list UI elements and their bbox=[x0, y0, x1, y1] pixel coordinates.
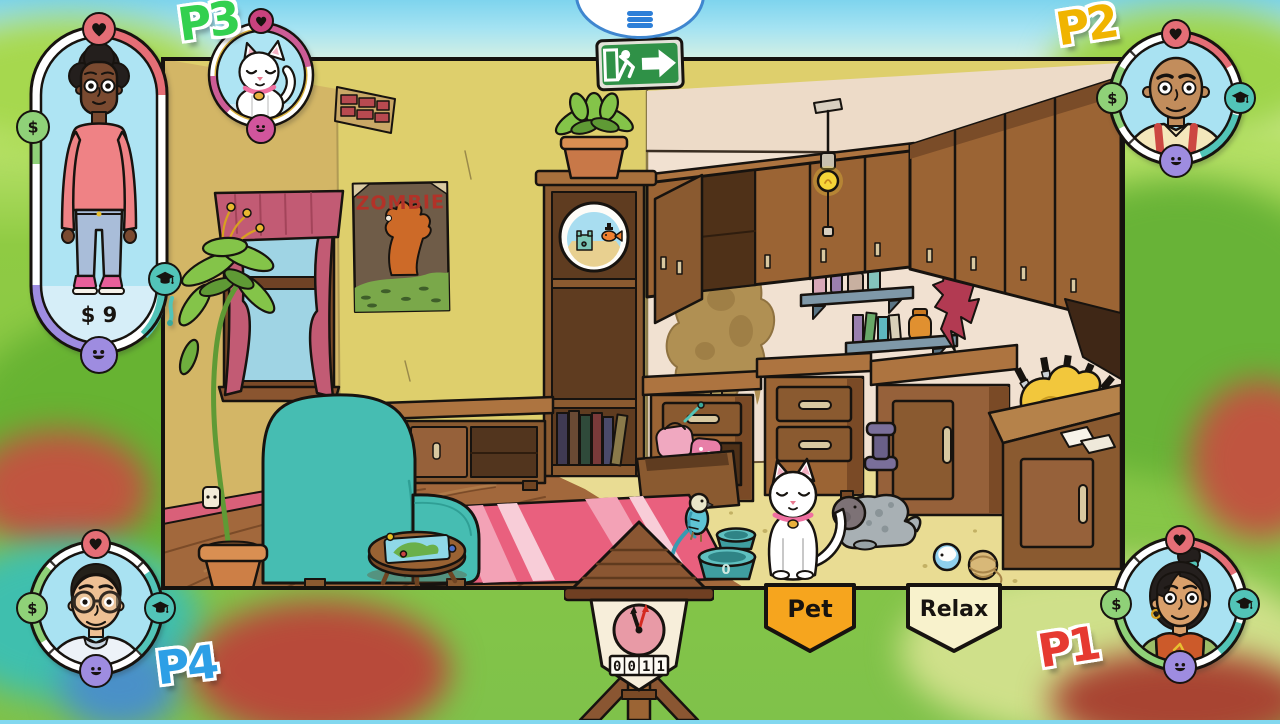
education-icon bbox=[1224, 82, 1256, 114]
wall-socket bbox=[203, 487, 220, 508]
fishbowl bbox=[560, 203, 628, 271]
cuckoo-clock: 0 0 1 1 bbox=[564, 518, 714, 720]
money-icon: $ bbox=[1096, 82, 1128, 114]
player-p1-portrait: $ bbox=[1110, 534, 1250, 674]
svg-text:$: $ bbox=[27, 600, 37, 617]
player-p4-portrait: $ bbox=[26, 538, 166, 678]
zombie-poster: ZOMBIE bbox=[353, 182, 449, 312]
mood-icon bbox=[79, 654, 113, 688]
coffee-table-with-board-game bbox=[367, 529, 467, 586]
player-p4-label: P4 bbox=[153, 639, 218, 692]
heart-icon bbox=[1161, 19, 1191, 49]
books bbox=[557, 411, 627, 465]
heart-icon bbox=[248, 8, 274, 34]
exit-sign[interactable] bbox=[595, 36, 685, 91]
player-p2-portrait: $ bbox=[1106, 28, 1246, 168]
education-icon bbox=[144, 592, 176, 624]
window-with-curtains bbox=[215, 191, 343, 401]
counter-digit: 1 bbox=[656, 659, 664, 675]
money-icon: $ bbox=[1100, 588, 1132, 620]
education-icon bbox=[148, 262, 182, 296]
svg-text:$: $ bbox=[28, 118, 39, 137]
player-p2-label: P2 bbox=[1053, 0, 1119, 52]
counter-digit: 1 bbox=[642, 659, 650, 675]
emergency-exit-running-man-icon bbox=[601, 44, 678, 85]
action-banner-label: Relax bbox=[920, 597, 988, 622]
bowl-mark: 0 bbox=[721, 563, 730, 578]
mood-icon bbox=[1163, 650, 1197, 684]
toy-ball[interactable] bbox=[934, 544, 960, 570]
svg-text:$: $ bbox=[1107, 90, 1117, 107]
svg-text:$: $ bbox=[1111, 596, 1121, 613]
heart-icon bbox=[81, 529, 111, 559]
counter-digit: 0 bbox=[613, 659, 621, 675]
action-banner-relax[interactable]: Relax bbox=[904, 583, 1004, 659]
player-p3-label: P3 bbox=[175, 0, 241, 48]
poster-title: ZOMBIE bbox=[355, 191, 445, 215]
heart-icon bbox=[1165, 525, 1195, 555]
player-p3-portrait: $ 9 $ bbox=[28, 24, 170, 356]
counter-digit: 0 bbox=[627, 659, 635, 675]
player-money: $ 9 bbox=[81, 303, 118, 327]
hamburger-menu-icon bbox=[627, 10, 653, 30]
mood-icon bbox=[246, 114, 276, 144]
money-icon: $ bbox=[16, 592, 48, 624]
room-scene: ZOMBIE bbox=[165, 61, 1121, 586]
mood-icon bbox=[80, 336, 118, 374]
education-charm bbox=[164, 296, 180, 326]
money-icon: $ bbox=[16, 110, 50, 144]
heart-icon bbox=[82, 12, 116, 46]
education-icon bbox=[1228, 588, 1260, 620]
action-banner-pet[interactable]: Pet bbox=[762, 583, 858, 659]
mood-icon bbox=[1159, 144, 1193, 178]
room-view: ZOMBIE bbox=[161, 57, 1125, 590]
action-banner-label: Pet bbox=[787, 595, 832, 623]
player-p1-label: P1 bbox=[1035, 620, 1101, 675]
